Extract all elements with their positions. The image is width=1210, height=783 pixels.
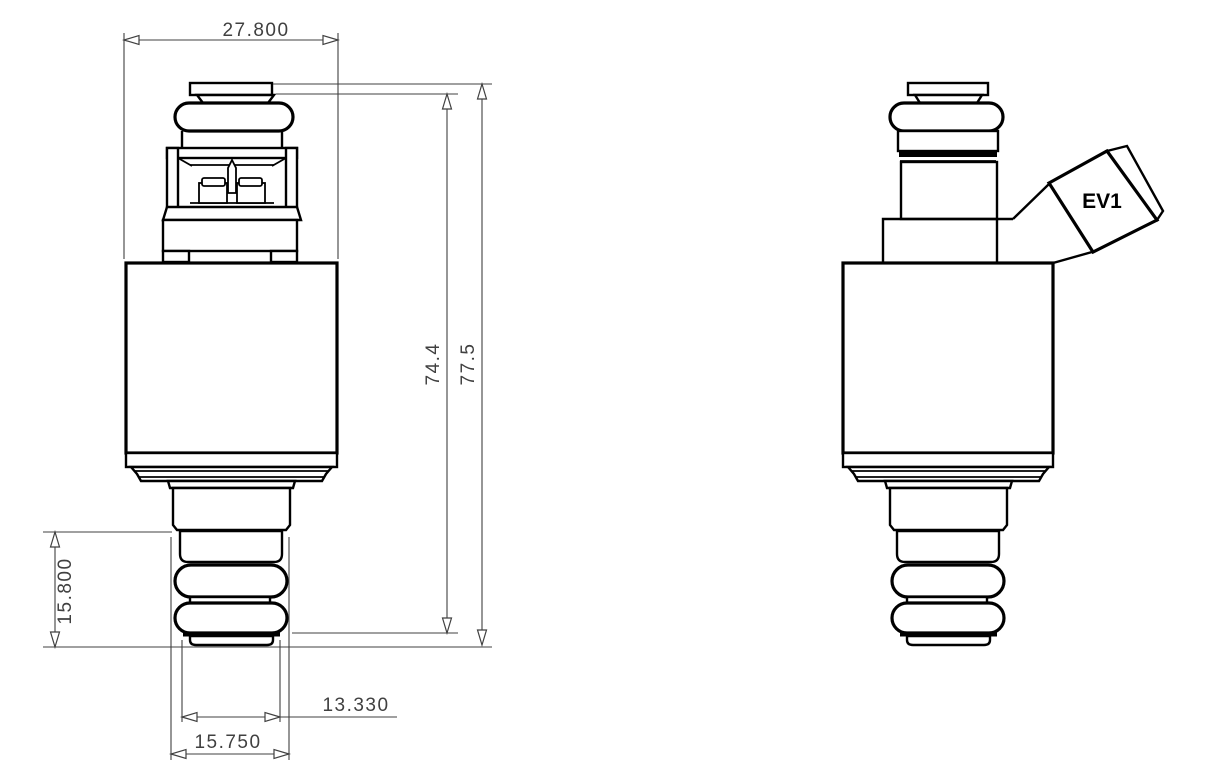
nozzle-lower-cylinder: [897, 531, 999, 562]
ev1-label: EV1: [1082, 190, 1122, 213]
center-pin: [228, 160, 236, 193]
dimension-text: 27.800: [222, 20, 289, 41]
electrical-connector: [163, 148, 301, 262]
connector-skirt: [163, 207, 301, 220]
inlet-cap: [908, 83, 988, 95]
connector-top-bar: [167, 148, 297, 158]
dimension-text: 15.800: [55, 557, 76, 624]
connector-right-rail: [286, 148, 297, 208]
collar: [883, 219, 1013, 263]
solenoid-body: [843, 263, 1053, 453]
nozzle-tip-cap: [190, 636, 273, 645]
nozzle-oring-upper: [175, 565, 287, 597]
nozzle-upper-cylinder: [890, 488, 1007, 530]
nozzle-oring-upper: [892, 565, 1004, 597]
dimension-text: 77.5: [458, 343, 479, 386]
connector-left-rail: [167, 148, 178, 208]
inlet-oring: [890, 103, 1003, 131]
nozzle-oring-lower: [892, 603, 1004, 633]
dimension-text: 15.750: [194, 732, 261, 753]
terminal-left-cap: [202, 178, 225, 186]
body-bottom-band: [126, 453, 337, 467]
connector-foot-right: [271, 251, 297, 262]
front-view: [126, 83, 337, 645]
connector-foot-left: [163, 251, 189, 262]
inlet-oring: [175, 103, 293, 131]
dimension-text: 74.4: [423, 343, 444, 386]
dim-lower-stack-height: 15.800: [43, 532, 172, 647]
body-bottom-band: [843, 453, 1053, 467]
upper-cylinder: [901, 162, 997, 219]
nozzle-oring-lower: [175, 603, 287, 633]
inlet-cap: [190, 83, 272, 95]
nozzle-tip-cap: [907, 636, 990, 645]
side-view: EV1: [843, 83, 1163, 645]
nozzle-upper-cylinder: [173, 488, 290, 530]
upper-ring-section: [898, 131, 998, 151]
dark-ring-band: [899, 151, 997, 157]
ev1-connector: EV1: [1013, 146, 1163, 263]
terminal-right-cap: [239, 178, 262, 186]
technical-drawing: EV1 27.800 74.4 77.5 15.800 13.330: [0, 0, 1210, 783]
connector-base: [163, 220, 297, 251]
body-flange: [131, 467, 332, 481]
body-flange: [848, 467, 1049, 481]
dimension-text: 13.330: [322, 695, 389, 716]
nozzle-lower-cylinder: [180, 531, 282, 562]
solenoid-body: [126, 263, 337, 453]
